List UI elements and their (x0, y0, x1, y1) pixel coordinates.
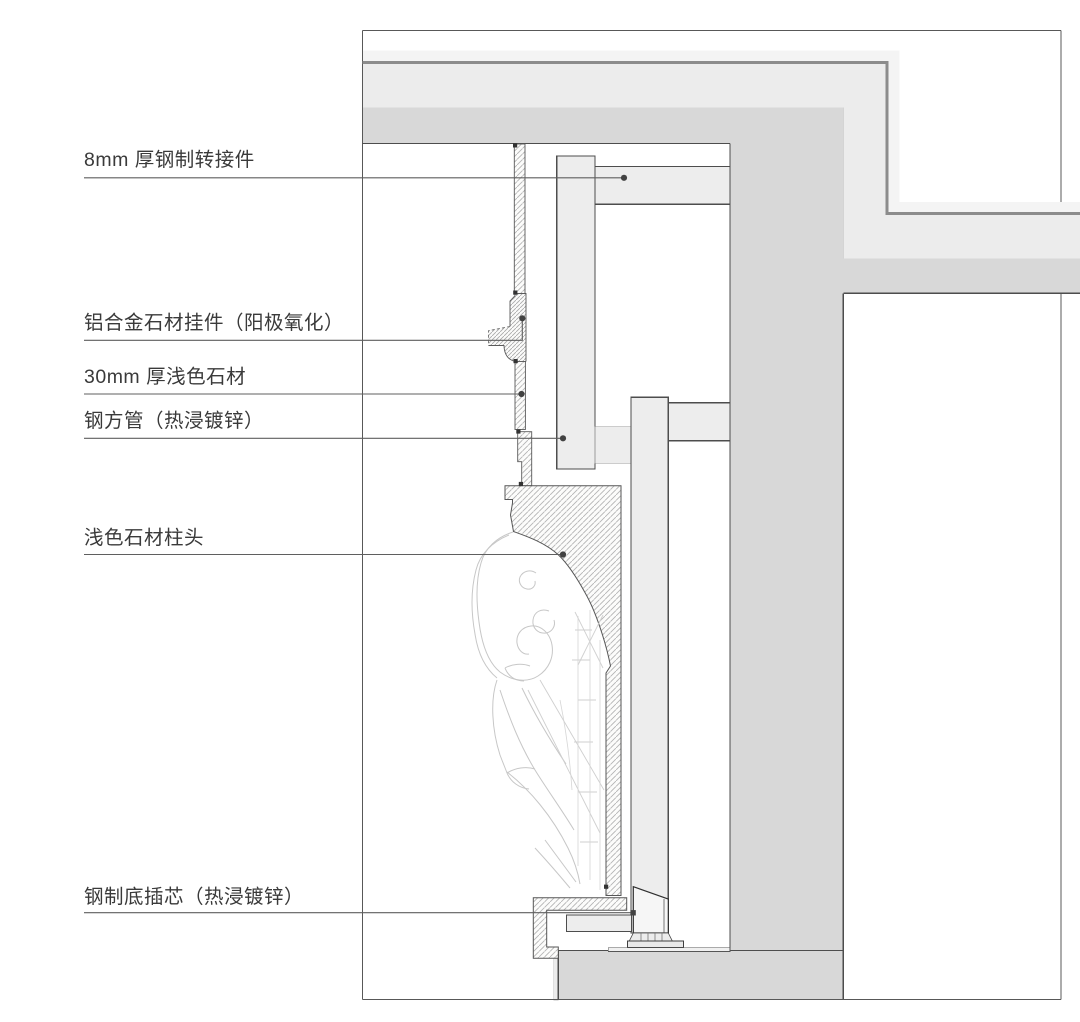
steel-adapter-top-arm (595, 167, 730, 205)
shoe-base-plate (627, 941, 683, 948)
aluminum-hanger-body (489, 294, 527, 362)
stone-panel-upper (514, 144, 525, 294)
steel-connector-piece (595, 427, 631, 464)
stone-panel-lower (518, 432, 532, 486)
callout-light-stone-panel: 30mm 厚浅色石材 (84, 366, 246, 389)
steel-adapter-lower-arm (668, 403, 730, 441)
bottom-insert-assembly (567, 887, 730, 952)
column-shoe (629, 933, 672, 941)
stone-panels (489, 144, 532, 486)
callout-steel-adapter: 8mm 厚钢制转接件 (84, 149, 255, 172)
callout-steel-square-tube: 钢方管（热浸镀锌） (84, 410, 264, 433)
base-plate-inner (567, 915, 632, 932)
steel-column-inner (631, 397, 668, 933)
steel-square-tube-vertical (557, 156, 595, 469)
callout-aluminum-stone-hanger: 铝合金石材挂件（阳极氧化） (84, 312, 344, 335)
floor-anchor-plate (608, 948, 730, 952)
stone-capital-section (505, 486, 627, 959)
detail-drawing-canvas: 8mm 厚钢制转接件 铝合金石材挂件（阳极氧化） 30mm 厚浅色石材 钢方管（… (0, 0, 1080, 1022)
callout-stone-capital: 浅色石材柱头 (84, 527, 204, 550)
callout-steel-bottom-insert: 钢制底插芯（热浸镀锌） (84, 886, 304, 909)
